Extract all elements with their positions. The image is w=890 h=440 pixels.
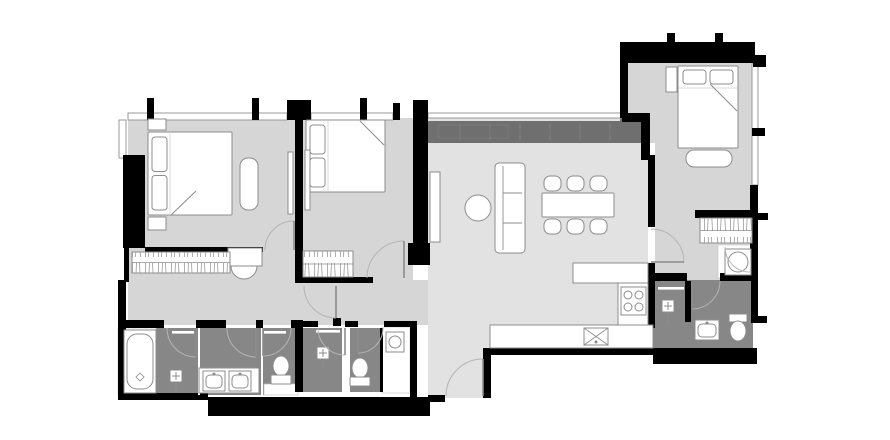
floor-plan-drawing xyxy=(0,0,890,440)
tv-cabinet xyxy=(430,172,440,242)
sink xyxy=(695,320,719,340)
faucet xyxy=(213,373,216,376)
wall-segment xyxy=(715,33,723,42)
window xyxy=(311,113,393,120)
cistern xyxy=(350,377,370,386)
wall-segment xyxy=(123,155,145,248)
faucet xyxy=(239,373,242,376)
pillow xyxy=(310,125,325,154)
nightstand xyxy=(148,217,166,230)
towel-rail xyxy=(172,331,194,334)
tv-cabinet xyxy=(430,172,440,242)
table-top xyxy=(465,195,491,221)
pillow xyxy=(683,70,706,84)
wall-segment xyxy=(384,321,410,327)
wall-segment xyxy=(483,350,491,398)
wall-segment xyxy=(124,248,129,282)
wardrobe xyxy=(132,252,230,273)
tv-panel xyxy=(305,150,310,210)
bed-2 xyxy=(306,120,385,192)
wall-segment xyxy=(667,33,675,42)
bench xyxy=(240,158,258,210)
sofa xyxy=(495,163,525,253)
floor-corridor-center xyxy=(303,280,430,325)
wall-segment xyxy=(118,393,208,400)
washer-body xyxy=(725,249,751,275)
wall-segment xyxy=(118,320,164,328)
dressing-table xyxy=(228,248,262,266)
wall-segment xyxy=(287,100,311,120)
toilet xyxy=(271,356,291,384)
stove-body xyxy=(621,287,646,315)
kitchen-counter xyxy=(490,325,653,348)
wall-segment xyxy=(256,320,263,328)
pillow xyxy=(152,176,167,211)
wall-segment xyxy=(648,155,655,227)
wall-segment xyxy=(695,210,753,218)
dressing-table xyxy=(228,248,262,266)
wall-segment xyxy=(252,98,259,120)
bowl xyxy=(730,321,746,341)
pillow xyxy=(152,137,167,172)
chair xyxy=(544,219,561,234)
wall-segment xyxy=(653,348,757,364)
bathtub xyxy=(124,330,156,393)
tv-panel xyxy=(288,152,293,214)
faucet xyxy=(706,322,709,325)
kitchen-counter xyxy=(573,263,648,283)
wall-segment xyxy=(295,321,303,392)
towel-rail xyxy=(658,287,684,290)
towel-rail xyxy=(316,330,340,333)
wall-segment xyxy=(623,42,755,63)
sink-bowl xyxy=(206,375,222,388)
nightstand xyxy=(148,119,166,130)
bench xyxy=(686,150,732,167)
cistern xyxy=(271,375,291,384)
wall-segment xyxy=(345,321,358,327)
washing-machine xyxy=(386,332,404,352)
dining-table xyxy=(542,176,614,234)
wall-segment xyxy=(393,103,400,120)
towel-bar xyxy=(172,331,194,334)
kitchen-counter xyxy=(573,263,648,283)
wall-segment xyxy=(641,122,650,160)
sink xyxy=(229,371,251,391)
nightstand xyxy=(148,217,166,230)
faucet xyxy=(595,341,598,344)
chair xyxy=(567,219,584,234)
sink-bowl xyxy=(232,375,248,388)
wall-segment xyxy=(408,243,430,265)
coffee-table xyxy=(465,195,491,221)
window xyxy=(428,113,622,118)
nightstand xyxy=(666,67,677,92)
wall-segment xyxy=(752,128,765,136)
wall-segment xyxy=(751,316,767,323)
chair xyxy=(590,176,607,191)
nightstand xyxy=(148,119,166,130)
sink xyxy=(203,371,225,391)
bench xyxy=(686,150,732,167)
table-top xyxy=(542,193,614,217)
sofa-body xyxy=(495,163,525,253)
wall-segment xyxy=(360,98,367,120)
toilet xyxy=(350,358,370,386)
wall-segment xyxy=(483,348,655,355)
tv-panel xyxy=(305,150,310,210)
floor-plan xyxy=(0,0,890,440)
chair xyxy=(544,176,561,191)
wall-segment xyxy=(753,213,768,220)
wardrobe xyxy=(303,251,353,277)
wall-segment xyxy=(196,320,226,328)
nightstand xyxy=(666,67,677,92)
kitchen-cabinet-band xyxy=(428,121,648,143)
wall-segment xyxy=(428,395,445,402)
toilet xyxy=(729,314,747,341)
wall-segment xyxy=(147,98,154,120)
wardrobe xyxy=(700,218,752,243)
wall-segment xyxy=(685,281,691,322)
bowl xyxy=(352,358,368,378)
window xyxy=(752,63,758,185)
towel-bar xyxy=(264,331,286,334)
pillow xyxy=(710,70,733,84)
towel-bar xyxy=(316,330,340,333)
wall-segment xyxy=(208,397,430,416)
wall-segment xyxy=(303,321,318,327)
chair xyxy=(567,176,584,191)
sink-bowl xyxy=(698,324,716,337)
toilet-nook xyxy=(264,384,298,395)
kitchen-sink xyxy=(584,328,608,345)
kitchen-counter xyxy=(490,325,653,348)
towel-rail xyxy=(264,331,286,334)
wall-segment xyxy=(410,321,417,397)
window xyxy=(119,120,126,158)
towel-bar xyxy=(658,287,684,290)
tv-panel xyxy=(288,152,293,214)
pillow xyxy=(310,158,325,187)
bed-master xyxy=(148,132,232,215)
wall-segment xyxy=(333,318,341,326)
closet-basin xyxy=(725,249,751,275)
wall-segment xyxy=(753,55,766,67)
wall-segment xyxy=(295,277,373,283)
bed-3 xyxy=(678,66,738,148)
wall-segment xyxy=(295,118,303,283)
wall-segment xyxy=(413,100,428,250)
bowl xyxy=(273,356,289,376)
stove xyxy=(621,287,646,315)
wall-segment xyxy=(648,263,655,328)
bench xyxy=(240,158,258,210)
chair xyxy=(590,219,607,234)
